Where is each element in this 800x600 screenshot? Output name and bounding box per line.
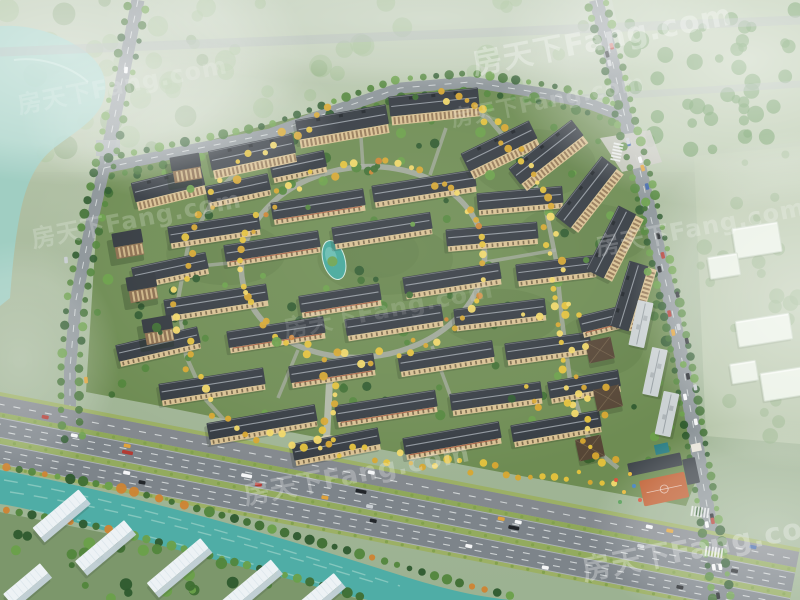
aerial-render-canvas xyxy=(0,0,800,600)
aerial-render-screenshot: 房天下Fang.com 房天下Fang.com 房天下Fang.com 房天下F… xyxy=(0,0,800,600)
